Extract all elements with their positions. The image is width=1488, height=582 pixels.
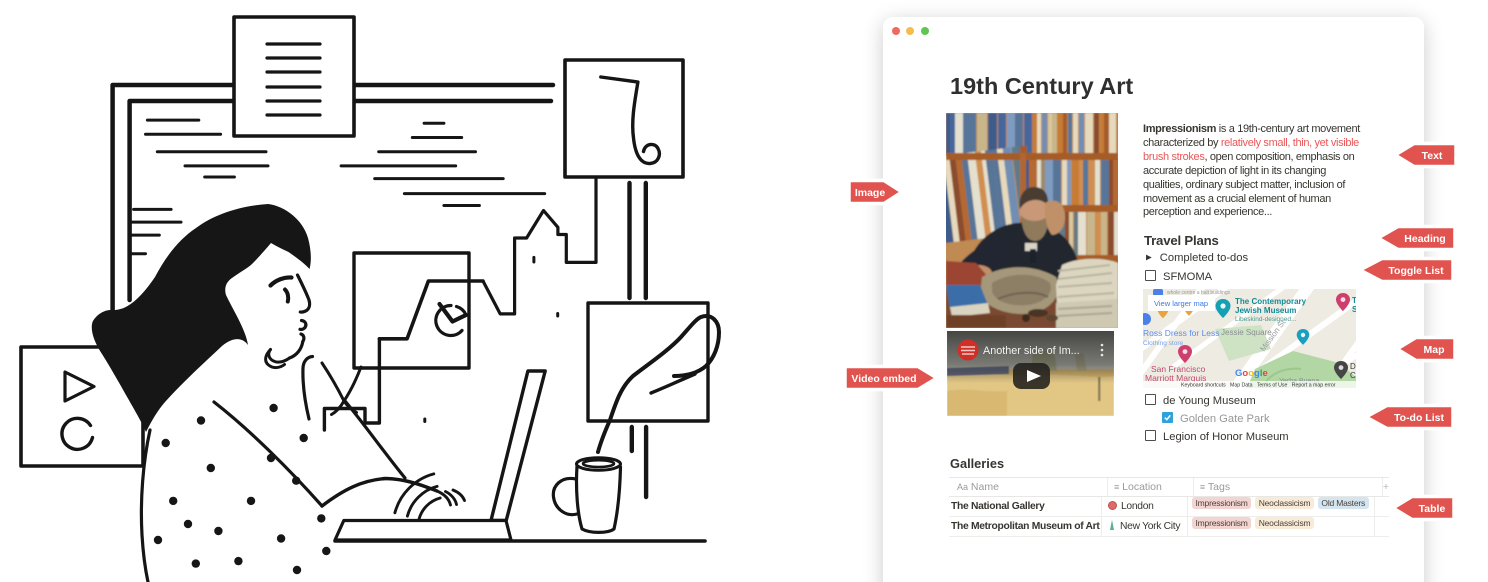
svg-text:Toggle List: Toggle List [1388,265,1444,277]
svg-text:Heading: Heading [1404,233,1445,245]
svg-text:The Contemporary: The Contemporary [1235,297,1307,306]
svg-text:To-do List: To-do List [1394,412,1444,424]
svg-text:Ross Dress for Less: Ross Dress for Less [1143,328,1220,338]
svg-text:Image: Image [855,187,886,199]
svg-text:Libeskind-designed...: Libeskind-designed... [1235,316,1297,323]
svg-text:Google: Google [1235,368,1268,379]
svg-text:Jessie Square: Jessie Square [1221,328,1272,337]
svg-text:T: T [1352,296,1356,305]
svg-text:Jewish Museum: Jewish Museum [1235,306,1296,315]
svg-text:Map: Map [1424,344,1445,356]
svg-text:S: S [1352,305,1356,314]
svg-text:Keyboard shortcuts Map Data: Keyboard shortcuts Map Data Terms of Use… [1181,383,1336,389]
svg-text:Text: Text [1422,150,1443,162]
svg-text:D: D [1350,362,1356,371]
svg-text:Table: Table [1419,503,1446,515]
svg-text:C: C [1350,371,1356,380]
svg-text:View larger map: View larger map [1154,299,1208,308]
svg-text:Another side of Im...: Another side of Im... [983,345,1080,357]
svg-text:Video embed: Video embed [851,373,916,385]
svg-text:Clothing store: Clothing store [1143,340,1183,347]
